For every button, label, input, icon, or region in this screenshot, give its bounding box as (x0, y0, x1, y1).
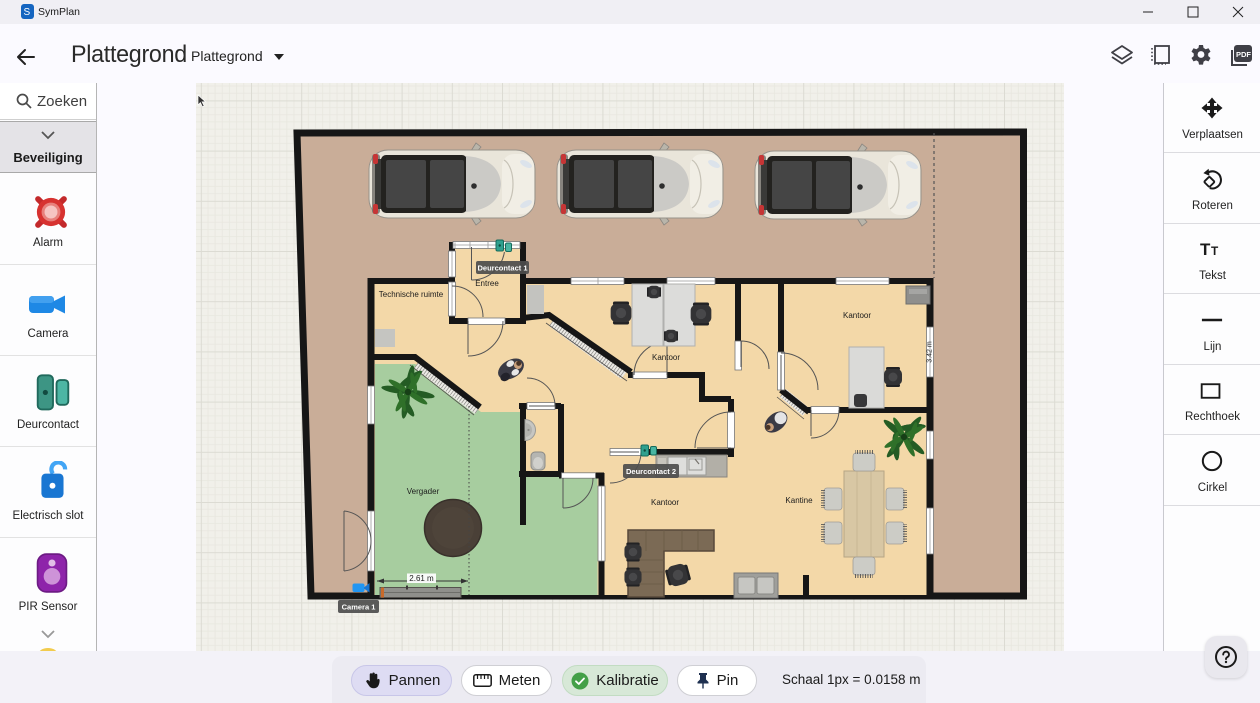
svg-text:T: T (1211, 244, 1219, 258)
svg-text:2.61 m: 2.61 m (409, 574, 434, 583)
svg-text:Kantoor: Kantoor (843, 311, 871, 320)
svg-text:Entree: Entree (475, 279, 499, 288)
svg-text:Kantoor: Kantoor (651, 498, 679, 507)
svg-text:Deurcontact 2: Deurcontact 2 (626, 467, 676, 476)
svg-text:S: S (24, 7, 31, 18)
svg-text:PDF: PDF (1236, 50, 1251, 59)
svg-text:T: T (1200, 240, 1211, 259)
svg-text:Kantine: Kantine (785, 496, 813, 505)
svg-text:Deurcontact 1: Deurcontact 1 (477, 264, 527, 273)
svg-text:3.42 m: 3.42 m (927, 341, 934, 363)
svg-text:Technische ruimte: Technische ruimte (379, 290, 444, 299)
svg-text:Kantoor: Kantoor (652, 353, 680, 362)
svg-text:Camera 1: Camera 1 (342, 603, 376, 612)
svg-text:Vergader: Vergader (407, 487, 440, 496)
